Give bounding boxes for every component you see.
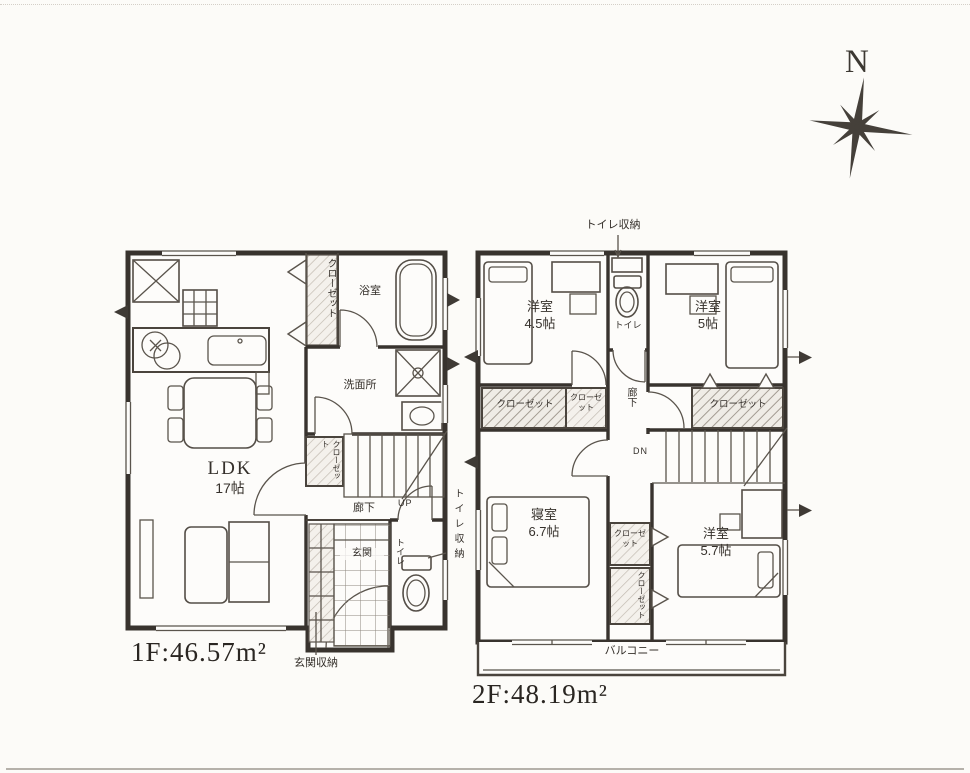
label-closet-left-2f: クローゼット <box>487 400 563 411</box>
label-toilet-2f: トイレ <box>610 320 646 330</box>
floorplan-page: クローゼット 浴室 洗面所 クローゼット 廊下 UP トイレ 玄関 LDK 17… <box>0 0 970 773</box>
label-north: N <box>845 44 869 82</box>
label-area-2f: 2F:48.19m² <box>472 679 608 710</box>
label-entrance-storage: 玄関収納 <box>276 657 356 670</box>
label-room-a-size: 4.5帖 <box>506 317 574 332</box>
label-hallway-2f: 廊下 <box>620 387 636 429</box>
label-bedroom-size: 6.7帖 <box>512 525 576 540</box>
label-closet-c2-2f: クローゼット <box>613 571 647 621</box>
label-bath: 浴室 <box>348 285 392 298</box>
label-toilet-1f: トイレ <box>392 538 405 590</box>
leader-toilet-storage-2f <box>615 235 621 257</box>
label-area-1f: 1F:46.57m² <box>131 637 267 668</box>
label-room-b-size: 5帖 <box>682 317 734 332</box>
label-closet-c1-2f: クローゼット <box>611 529 649 550</box>
label-stairs-up: UP <box>398 498 413 508</box>
label-ldk-size: 17帖 <box>188 480 272 496</box>
label-room-c-size: 5.7帖 <box>686 544 746 559</box>
label-room-a-name: 洋室 <box>506 300 574 315</box>
label-closet-right-2f: クローゼット <box>698 400 778 411</box>
label-washroom: 洗面所 <box>324 379 396 392</box>
label-stairs-dn: DN <box>633 446 648 456</box>
label-room-b-name: 洋室 <box>682 300 734 315</box>
label-hallway-1f: 廊下 <box>344 502 384 515</box>
label-bedroom-name: 寝室 <box>512 508 576 523</box>
label-toilet-storage-2f: トイレ収納 <box>570 219 656 232</box>
entrance-tiles <box>334 524 390 646</box>
label-ldk-name: LDK <box>188 458 272 480</box>
scan-artifact-line <box>6 768 964 770</box>
label-closet-mid-2f: クローゼット <box>568 393 604 414</box>
label-closet-1f: クローゼット <box>310 258 336 350</box>
label-entrance: 玄関 <box>340 548 384 560</box>
label-closet-small-1f: クローゼット <box>309 440 342 485</box>
floor1-plan <box>114 250 460 656</box>
label-room-c-name: 洋室 <box>686 527 746 542</box>
label-toilet-storage-1f: トイレ収納 <box>447 488 463 600</box>
compass-rose <box>802 71 919 186</box>
entrance-area <box>309 524 390 646</box>
scan-artifact-top <box>0 4 970 5</box>
label-balcony: バルコニー <box>590 645 674 658</box>
